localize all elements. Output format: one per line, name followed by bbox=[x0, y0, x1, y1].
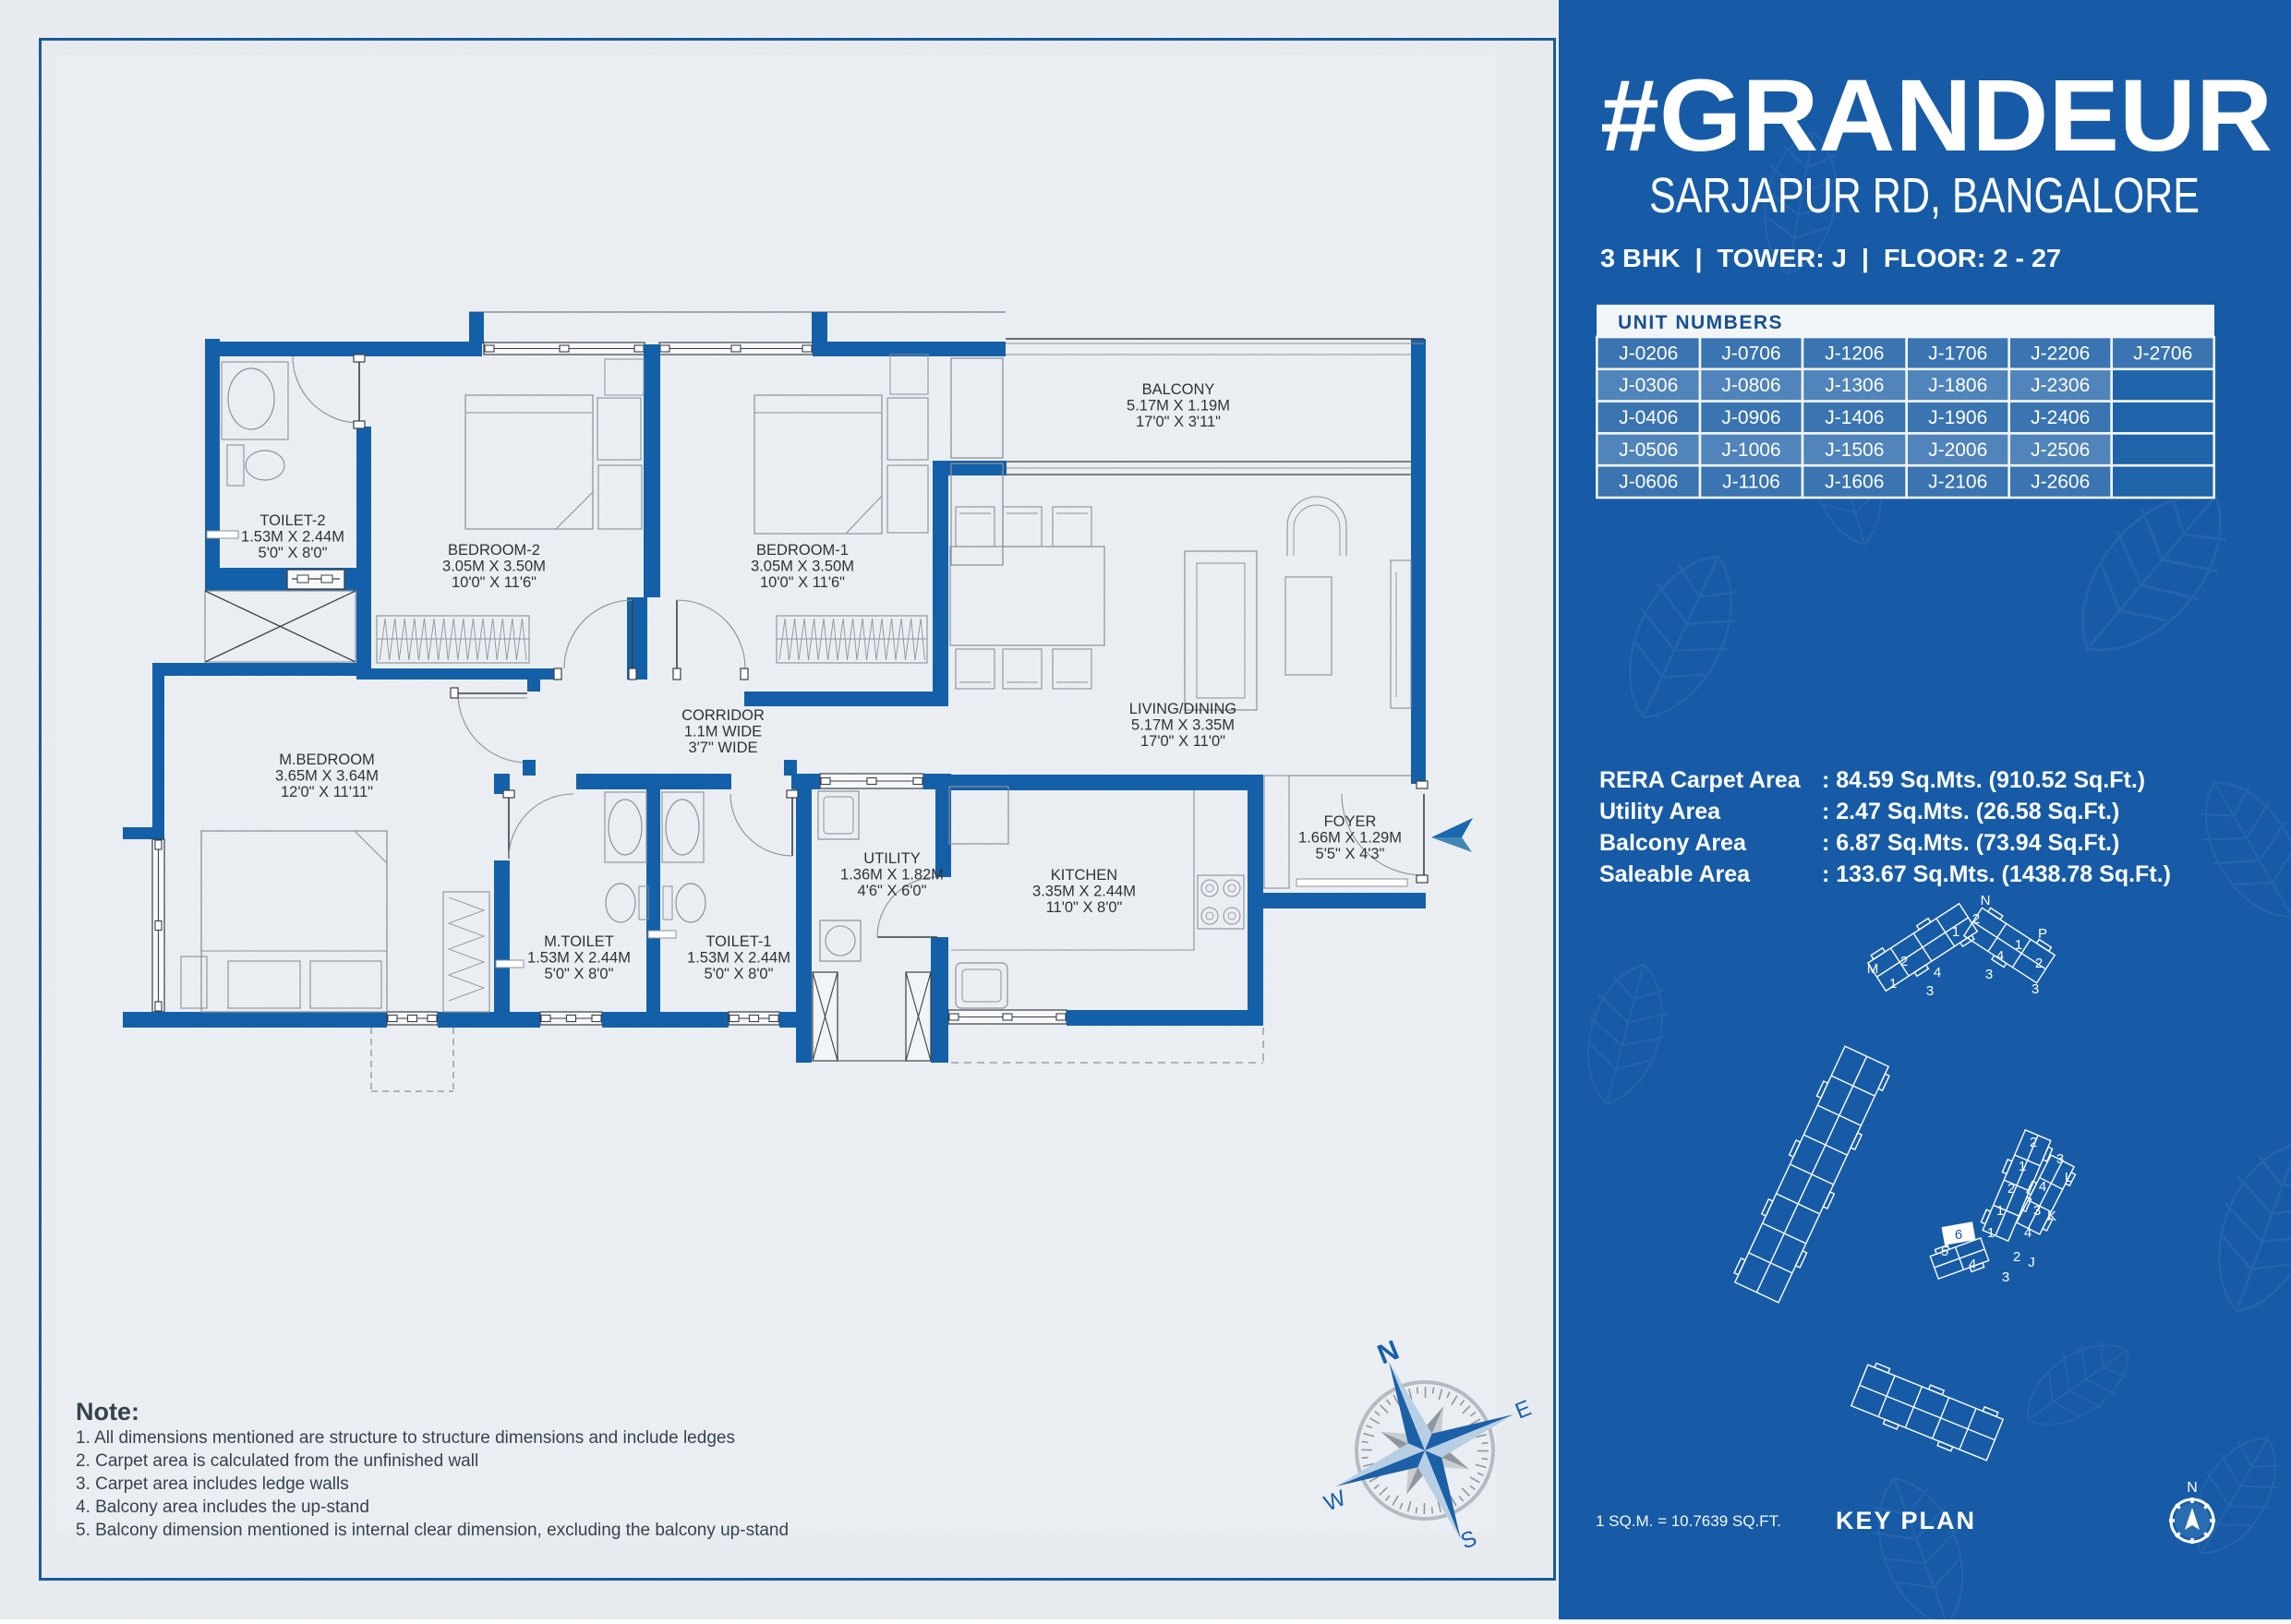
svg-text:J-0706: J-0706 bbox=[1721, 343, 1780, 364]
svg-text:J-0206: J-0206 bbox=[1619, 343, 1678, 364]
svg-text:2: 2 bbox=[2035, 956, 2043, 971]
svg-text:BALCONY5.17M X 1.19M17'0" X 3': BALCONY5.17M X 1.19M17'0" X 3'11" bbox=[1127, 381, 1230, 430]
svg-text:BEDROOM-13.05M X 3.50M10'0" X: BEDROOM-13.05M X 3.50M10'0" X 11'6" bbox=[751, 542, 854, 591]
svg-text:6: 6 bbox=[1955, 1227, 1962, 1243]
svg-text:J-2506: J-2506 bbox=[2031, 439, 2090, 461]
svg-text:P: P bbox=[2038, 926, 2047, 942]
svg-text:SARJAPUR RD, BANGALORE: SARJAPUR RD, BANGALORE bbox=[1649, 168, 2200, 223]
svg-text:K: K bbox=[2047, 1209, 2056, 1224]
svg-text:1: 1 bbox=[1996, 1203, 2004, 1219]
svg-text:L: L bbox=[2065, 1170, 2072, 1185]
svg-text:RERA Carpet Area: RERA Carpet Area bbox=[1599, 767, 1802, 793]
svg-text:#GRANDEUR: #GRANDEUR bbox=[1600, 59, 2273, 173]
svg-text:BEDROOM-23.05M X 3.50M10'0" X: BEDROOM-23.05M X 3.50M10'0" X 11'6" bbox=[442, 542, 546, 591]
svg-text:M: M bbox=[1867, 961, 1879, 977]
svg-text:Note:: Note: bbox=[76, 1398, 139, 1426]
svg-text:: 133.67 Sq.Mts. (1438.78 Sq.F: : 133.67 Sq.Mts. (1438.78 Sq.Ft.) bbox=[1822, 861, 2171, 887]
svg-text:J-1606: J-1606 bbox=[1825, 472, 1884, 493]
svg-text:J-1006: J-1006 bbox=[1721, 439, 1780, 461]
svg-text:J-2606: J-2606 bbox=[2031, 472, 2090, 493]
svg-text:1: 1 bbox=[2015, 937, 2022, 953]
svg-text:J-1806: J-1806 bbox=[1928, 375, 1987, 396]
svg-text:J-1906: J-1906 bbox=[1928, 407, 1987, 428]
svg-text:: 6.87 Sq.Mts. (73.94 Sq.Ft.): : 6.87 Sq.Mts. (73.94 Sq.Ft.) bbox=[1822, 830, 2119, 856]
svg-text:3: 3 bbox=[1926, 983, 1934, 999]
svg-text:4: 4 bbox=[1934, 965, 1941, 980]
svg-text:J-1106: J-1106 bbox=[1722, 472, 1780, 493]
svg-text:5: 5 bbox=[1941, 1244, 1948, 1259]
svg-text:KEY PLAN: KEY PLAN bbox=[1836, 1507, 1976, 1534]
svg-text:N: N bbox=[1981, 893, 1991, 908]
svg-text:J-2306: J-2306 bbox=[2031, 375, 2090, 396]
svg-text:J-1406: J-1406 bbox=[1825, 407, 1884, 428]
svg-text:2: 2 bbox=[2013, 1249, 2020, 1265]
svg-text:3 BHK | TOWER: J | FLOOR:: 3 BHK | TOWER: J | FLOOR: 2 - 27 bbox=[1600, 244, 2061, 272]
svg-text:3: 3 bbox=[2032, 981, 2039, 997]
svg-text:J-2106: J-2106 bbox=[1928, 472, 1987, 493]
svg-text:J-2406: J-2406 bbox=[2031, 407, 2090, 428]
svg-text:2: 2 bbox=[1900, 954, 1908, 969]
svg-text:CORRIDOR1.1M WIDE3'7" WIDE: CORRIDOR1.1M WIDE3'7" WIDE bbox=[681, 707, 765, 756]
svg-text:J-0306: J-0306 bbox=[1619, 375, 1678, 396]
svg-text:J-0606: J-0606 bbox=[1619, 472, 1678, 493]
svg-text:J: J bbox=[2028, 1255, 2035, 1270]
svg-text:2: 2 bbox=[1972, 911, 1980, 927]
svg-text:J-0406: J-0406 bbox=[1619, 407, 1678, 428]
svg-text:J-1706: J-1706 bbox=[1928, 343, 1987, 364]
svg-text:3: 3 bbox=[2002, 1269, 2009, 1285]
svg-text:3: 3 bbox=[1985, 967, 1993, 982]
svg-text:3: 3 bbox=[2033, 1203, 2041, 1219]
svg-text:1: 1 bbox=[2019, 1159, 2026, 1174]
svg-text:1: 1 bbox=[1987, 1225, 1995, 1241]
svg-text:J-2206: J-2206 bbox=[2031, 343, 2090, 364]
svg-text:N: N bbox=[2187, 1480, 2198, 1496]
svg-text:J-1306: J-1306 bbox=[1825, 375, 1884, 396]
svg-text:1 SQ.M. = 10.7639 SQ.FT.: 1 SQ.M. = 10.7639 SQ.FT. bbox=[1596, 1512, 1781, 1530]
svg-text:4: 4 bbox=[2024, 1225, 2032, 1241]
svg-text:J-2006: J-2006 bbox=[1928, 439, 1987, 461]
svg-text:J-1206: J-1206 bbox=[1825, 343, 1884, 364]
svg-text:4: 4 bbox=[1969, 1257, 1976, 1272]
svg-text:: 84.59 Sq.Mts. (910.52 Sq.Ft.: : 84.59 Sq.Mts. (910.52 Sq.Ft.) bbox=[1822, 767, 2145, 793]
svg-text:J-1506: J-1506 bbox=[1825, 439, 1884, 461]
svg-text:Saleable Area: Saleable Area bbox=[1599, 861, 1751, 887]
svg-text:J-0506: J-0506 bbox=[1619, 439, 1678, 461]
svg-text:LIVING/DINING5.17M X 3.35M17'0: LIVING/DINING5.17M X 3.35M17'0" X 11'0" bbox=[1129, 701, 1236, 750]
svg-text:J-0906: J-0906 bbox=[1721, 407, 1780, 428]
svg-text:UNIT NUMBERS: UNIT NUMBERS bbox=[1618, 312, 1783, 333]
svg-text:1: 1 bbox=[1889, 976, 1897, 992]
svg-text:Utility Area: Utility Area bbox=[1599, 799, 1721, 824]
svg-text:J-2706: J-2706 bbox=[2133, 343, 2192, 364]
svg-text:Balcony Area: Balcony Area bbox=[1599, 830, 1747, 856]
svg-text:2: 2 bbox=[2008, 1181, 2015, 1197]
svg-text:M.BEDROOM3.65M X 3.64M12'0" X: M.BEDROOM3.65M X 3.64M12'0" X 11'11" bbox=[275, 752, 379, 800]
svg-text:2: 2 bbox=[2030, 1135, 2037, 1150]
svg-text:: 2.47 Sq.Mts. (26.58 Sq.Ft.): : 2.47 Sq.Mts. (26.58 Sq.Ft.) bbox=[1822, 799, 2119, 824]
svg-text:4: 4 bbox=[1996, 948, 2004, 964]
svg-text:3: 3 bbox=[2056, 1151, 2064, 1167]
svg-text:4: 4 bbox=[2039, 1179, 2046, 1195]
svg-text:1: 1 bbox=[1952, 924, 1959, 940]
svg-text:J-0806: J-0806 bbox=[1721, 375, 1780, 396]
